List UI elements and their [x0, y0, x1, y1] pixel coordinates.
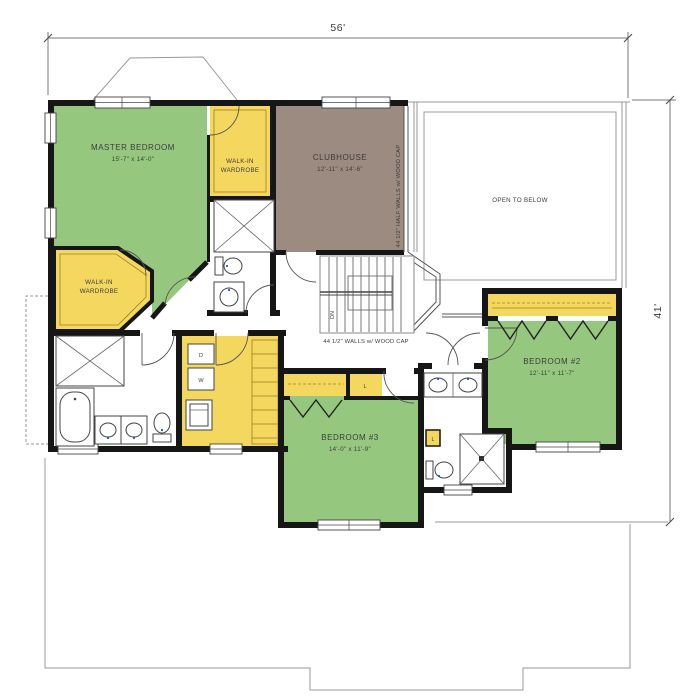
window-bedroom3: [318, 520, 380, 530]
laundry-sink: [186, 400, 212, 430]
wall-clubhouse-bottom-b: [316, 250, 404, 255]
door-arc-bath2-left: [426, 333, 458, 365]
wiw2-label-2: WARDROBE: [221, 167, 260, 174]
toilet-upper: [215, 257, 242, 275]
vanity-shared: [424, 373, 482, 397]
wiw2-label-1: WALK-IN: [226, 158, 254, 165]
bedroom2-size: 12'-11" x 11'-7": [529, 370, 574, 377]
open-to-below-label: OPEN TO BELOW: [492, 197, 548, 204]
window-master-left-upper: [45, 113, 56, 143]
wall-masterbath-top-a: [54, 330, 140, 336]
door-arc-upper-bath: [246, 285, 274, 313]
wall-bed3-bath: [418, 363, 424, 528]
dimension-width: 56': [44, 22, 632, 98]
shower-shared: [460, 434, 504, 484]
master-bedroom-label: MASTER BEDROOM: [91, 143, 175, 152]
wall-bath2-top-b: [474, 363, 488, 369]
door-arc-master-bath: [142, 333, 174, 365]
open-below-inner-outline: [424, 112, 616, 280]
dimension-height: 41': [632, 96, 676, 526]
wall-closet-jamb-a: [488, 316, 498, 321]
toilet-master: [153, 413, 171, 442]
shower-upper: [214, 200, 274, 252]
bedroom3-label: BEDROOM #3: [321, 433, 379, 442]
window-bath2: [444, 485, 472, 495]
sink-upper: [214, 282, 244, 312]
clubhouse-size: 12'-11" x 14'-6": [317, 166, 363, 173]
toilet-shared: [426, 461, 453, 479]
window-clubhouse-top: [322, 97, 390, 108]
bay-window-roof-outline: [93, 57, 237, 100]
wall-laundry-top-a: [182, 330, 214, 336]
washer-label: W: [198, 378, 204, 384]
stairs: [320, 256, 414, 333]
linen-hall-label: L: [363, 384, 366, 390]
left-roof-outline: [26, 296, 48, 444]
wall-linen-divider: [346, 374, 350, 396]
wall-laundry-bed3: [278, 332, 284, 528]
master-bathroom-fixtures: [56, 336, 171, 446]
room-bedroom-2: [488, 321, 616, 444]
floor-plan-drawing: 56' 41' MASTER BEDROOM 15'-7" x 14'-0" W…: [0, 0, 700, 700]
dryer-label: D: [199, 353, 203, 359]
clubhouse-label: CLUBHOUSE: [313, 153, 367, 162]
wall-clubhouse-bottom-a: [276, 250, 286, 255]
wall-closet-jamb-b: [546, 316, 558, 321]
wall-bed2-right: [616, 288, 622, 450]
wall-bed3-top-a: [278, 368, 386, 374]
wall-note-label: 44 1/2" WALLS w/ WOOD CAP: [323, 339, 408, 345]
dim-height-label: 41': [652, 303, 664, 318]
wall-bed2-closet-top: [482, 288, 622, 294]
wiw-master-label-2: WARDROBE: [80, 288, 119, 295]
bedroom3-closet: [284, 374, 382, 396]
wall-bath-laundry: [176, 330, 182, 452]
bedroom3-size: 14'-0" x 11'-9": [329, 446, 371, 453]
half-wall-note-label: 44 1/2" HALF WALLS w/ WOOD CAP: [396, 145, 402, 248]
wall-upperbath-bottom-b: [272, 310, 280, 316]
half-walls: [404, 106, 482, 333]
wiw-master-label-1: WALK-IN: [85, 279, 113, 286]
bedroom2-closet: [488, 294, 616, 316]
dim-width-label: 56': [330, 22, 345, 34]
open-to-below-area: [406, 102, 630, 288]
wall-shower-right: [506, 428, 512, 493]
room-walk-in-wardrobe-2: [210, 106, 270, 196]
window-master-top: [95, 97, 150, 108]
door-arc-clubhouse: [286, 252, 316, 282]
wall-bed3-top-b: [414, 368, 424, 374]
wall-closet-jamb-c: [608, 316, 616, 321]
shower-master: [56, 336, 124, 386]
window-laundry: [210, 444, 242, 454]
wall-bed3-closet-jamb-a: [284, 396, 290, 400]
vanity-master: [95, 416, 147, 444]
bedroom2-label: BEDROOM #2: [523, 357, 581, 366]
wall-bed2-left-b: [482, 358, 488, 434]
bathtub: [56, 388, 94, 446]
upper-bathroom-fixtures: [214, 200, 274, 312]
master-bedroom-size: 15'-7" x 14'-0": [112, 156, 155, 163]
door-arc-bath2-right: [448, 333, 480, 365]
wall-bed3-closet-front: [344, 396, 418, 400]
wall-laundry-top-b: [248, 330, 286, 336]
floor-plan-canvas: 56' 41' MASTER BEDROOM 15'-7" x 14'-0" W…: [0, 0, 700, 700]
window-master-left-lower: [45, 208, 56, 238]
linen-bath-label: L: [431, 437, 434, 443]
window-bedroom2: [536, 442, 600, 452]
room-clubhouse: [276, 106, 404, 252]
stairs-dn-label: DN: [330, 311, 336, 319]
wall-left-exterior: [48, 100, 54, 452]
